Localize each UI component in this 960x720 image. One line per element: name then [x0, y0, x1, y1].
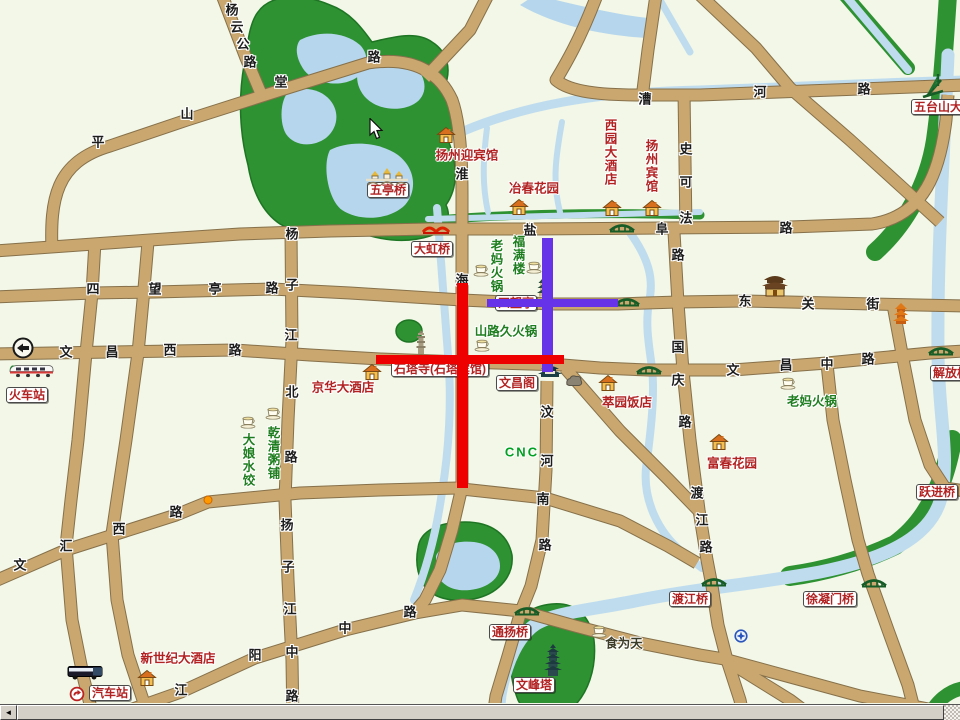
map-overlay: 平山堂路杨云公路淮海盐阜路漕河路史可法四望亭路杨子江北路文昌西路东关街路国庆路文…	[0, 0, 960, 703]
poi-label-box: 解放桥	[930, 365, 960, 381]
road-label-char: 堂	[274, 72, 287, 91]
road-label-char: 南	[536, 489, 549, 508]
bridge-green-icon	[928, 343, 954, 356]
bridge-green-icon	[861, 575, 887, 588]
road-label-char: 阜	[655, 219, 668, 238]
bridge-green-icon	[701, 574, 727, 587]
scrollbar-track[interactable]	[944, 705, 960, 720]
road-label-char: 路	[367, 47, 380, 66]
road-label-char: 漕	[638, 89, 651, 108]
cup-icon	[240, 416, 256, 429]
road-label-char: 江	[284, 325, 297, 344]
scroll-left-button[interactable]: ◄	[0, 705, 17, 720]
road-label-char: 中	[285, 642, 298, 661]
road-label-char: 路	[228, 340, 241, 359]
road-label-char: 西	[112, 519, 125, 538]
scrollbar-thumb[interactable]	[17, 705, 944, 720]
road-label-char: 法	[679, 208, 692, 227]
house-icon	[643, 199, 662, 217]
cursor-icon	[369, 118, 384, 140]
road-label-char: 四	[86, 279, 99, 298]
road-label-char: 路	[779, 218, 792, 237]
road-label-char: 路	[284, 447, 297, 466]
bus-logo-icon	[70, 687, 85, 702]
poi-text: 冶春花园	[509, 178, 559, 197]
bridge-red-icon	[422, 222, 450, 234]
road-label-char: 文	[59, 342, 72, 361]
road-label-char: 北	[285, 382, 298, 401]
house-icon	[603, 199, 622, 217]
road-label-char: 昌	[779, 355, 792, 374]
poi-label-box: 跃进桥	[916, 484, 958, 500]
road-label-char: 渡	[690, 483, 703, 502]
poi-text: 富春花园	[707, 453, 757, 472]
road-label-char: 可	[679, 172, 692, 191]
city-map: 平山堂路杨云公路淮海盐阜路漕河路史可法四望亭路杨子江北路文昌西路东关街路国庆路文…	[0, 0, 960, 703]
road-label-char: 江	[695, 510, 708, 529]
big-pagoda-icon	[543, 644, 563, 676]
road-label-char: 子	[285, 275, 298, 294]
house-icon	[599, 374, 618, 392]
poi-text: 萃园饭店	[602, 392, 652, 411]
road-label-char: 路	[699, 537, 712, 556]
bridge-cable-icon	[921, 72, 945, 98]
house-icon	[138, 669, 157, 687]
road-label-char: 庆	[671, 370, 684, 389]
cup-icon	[265, 407, 281, 420]
road-label-char: 山	[180, 104, 193, 123]
cup-icon	[591, 625, 607, 638]
poi-text: 新世纪大酒店	[140, 648, 215, 667]
road-label-char: 路	[861, 349, 874, 368]
road-label-char: 文	[13, 555, 26, 574]
house-icon	[437, 126, 456, 144]
temple-icon	[760, 271, 790, 297]
road-label-char: 汇	[59, 536, 72, 555]
poi-label-box: 大虹桥	[411, 241, 453, 257]
house-icon	[510, 198, 529, 216]
poi-text: 扬州迎宾馆	[436, 145, 499, 164]
road-label-char: 昌	[105, 342, 118, 361]
road-label-char: 路	[169, 502, 182, 521]
poi-text: 山路久火锅	[475, 321, 538, 340]
road-label-char: 江	[174, 680, 187, 699]
road-label-char: 国	[671, 337, 684, 356]
cup-icon	[473, 264, 489, 277]
road-label-char: 子	[281, 557, 294, 576]
rock-icon	[565, 374, 583, 387]
poi-text: 乾清粥铺	[264, 426, 283, 480]
poi-label-box: 火车站	[6, 387, 48, 403]
road-label-char: 中	[338, 618, 351, 637]
road-label-char: 平	[91, 132, 104, 151]
stone-pagoda-icon	[415, 330, 427, 354]
road-label-char: 河	[753, 82, 766, 101]
poi-text: 老妈火锅	[787, 391, 837, 410]
bridge-green-icon	[609, 220, 635, 233]
route-red-horizontal	[376, 355, 564, 364]
house-icon	[710, 433, 729, 451]
poi-label-box: 渡江桥	[669, 591, 711, 607]
road-label-char: 东	[738, 291, 751, 310]
poi-text: 扬州宾馆	[642, 139, 661, 193]
road-label-char: 汶	[540, 402, 553, 421]
road-label-char: 扬	[280, 515, 293, 534]
poi-label-box: 通扬桥	[489, 624, 531, 640]
road-label-char: 文	[726, 360, 739, 379]
horizontal-scrollbar[interactable]: ◄	[0, 704, 960, 720]
poi-label-box: 五台山大桥	[911, 99, 960, 115]
poi-label-box: 文昌阁	[496, 375, 538, 391]
blue-cross-icon	[734, 629, 748, 643]
bridge-green-icon	[636, 362, 662, 375]
road-label-char: 杨	[285, 224, 298, 243]
back-arrow-icon	[12, 337, 34, 359]
orange-pagoda-icon	[892, 302, 910, 324]
cup-icon	[780, 377, 796, 390]
road-label-char: 路	[265, 278, 278, 297]
road-label-char: 路	[243, 52, 256, 71]
five-bridge-icon	[365, 166, 409, 186]
road-label-char: 史	[679, 139, 692, 158]
poi-text: 西园大酒店	[601, 118, 620, 186]
road-label-char: 路	[857, 79, 870, 98]
cup-icon	[474, 339, 490, 352]
poi-text: CNC	[505, 445, 539, 460]
road-label-char: 路	[678, 412, 691, 431]
poi-label-box: 汽车站	[89, 685, 131, 701]
road-label-char: 路	[671, 245, 684, 264]
road-label-char: 亭	[208, 279, 221, 298]
bus-icon	[67, 664, 103, 681]
road-label-char: 西	[163, 340, 176, 359]
road-label-char: 街	[866, 294, 879, 313]
road-label-char: 路	[538, 535, 551, 554]
poi-text: 老妈火锅	[487, 239, 506, 293]
orange-dot-icon	[204, 496, 213, 505]
road-label-char: 淮	[455, 164, 468, 183]
road-label-char: 河	[540, 451, 553, 470]
poi-text: 福满楼	[509, 235, 528, 276]
road-label-char: 路	[403, 602, 416, 621]
bridge-green-icon	[514, 603, 540, 616]
road-label-char: 路	[285, 686, 298, 704]
poi-label-box: 文峰塔	[513, 677, 555, 693]
road-label-char: 江	[283, 599, 296, 618]
road-label-char: 关	[801, 294, 814, 313]
poi-label-box: 徐凝门桥	[803, 591, 857, 607]
map-application-window: 平山堂路杨云公路淮海盐阜路漕河路史可法四望亭路杨子江北路文昌西路东关街路国庆路文…	[0, 0, 960, 720]
scroll-left-arrow-icon: ◄	[5, 708, 13, 717]
road-label-char: 中	[820, 354, 833, 373]
house-icon	[363, 363, 382, 381]
road-label-char: 望	[148, 279, 161, 298]
poi-text: 大娘水饺	[239, 433, 258, 487]
poi-text: 食为天	[605, 633, 643, 652]
road-label-char: 公	[236, 34, 249, 53]
train-icon	[8, 362, 54, 379]
cup-icon	[526, 261, 542, 274]
route-purple-horizontal	[487, 299, 618, 307]
route-red-vertical	[457, 283, 468, 488]
road-label-char: 阳	[248, 645, 261, 664]
